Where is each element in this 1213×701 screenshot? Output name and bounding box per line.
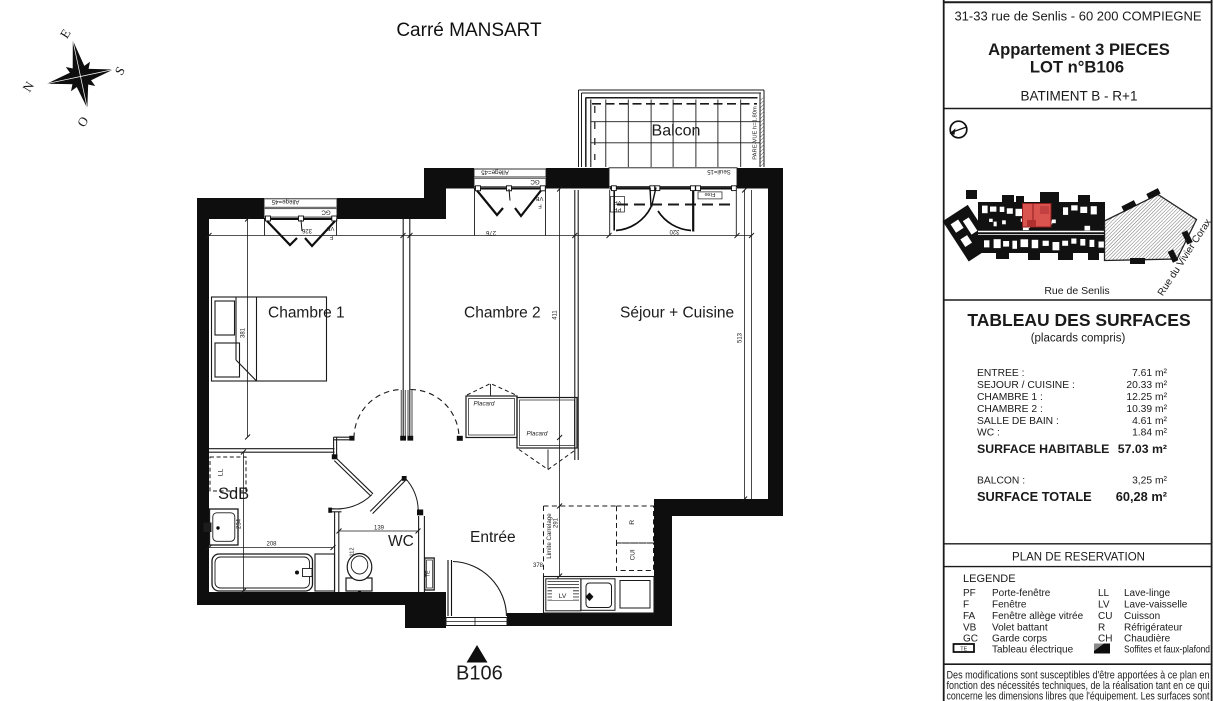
svg-text:Fixe: Fixe <box>705 191 716 197</box>
svg-text:LOT n°B106: LOT n°B106 <box>1030 58 1124 77</box>
svg-text:LL: LL <box>1098 588 1110 599</box>
svg-text:Appartement 3 PIECES: Appartement 3 PIECES <box>988 40 1170 59</box>
svg-text:Fenêtre: Fenêtre <box>992 600 1027 611</box>
svg-text:Chaudière: Chaudière <box>1124 634 1171 645</box>
svg-text:CHAMBRE 2 :: CHAMBRE 2 : <box>977 404 1043 415</box>
svg-text:Porte-fenêtre: Porte-fenêtre <box>992 588 1051 599</box>
svg-text:PF: PF <box>963 588 976 599</box>
svg-text:LV: LV <box>1098 600 1110 611</box>
svg-text:BALCON :: BALCON : <box>977 476 1025 487</box>
svg-text:Chambre 1: Chambre 1 <box>268 305 345 322</box>
svg-text:VB: VB <box>963 623 977 634</box>
svg-text:VB: VB <box>327 225 335 231</box>
svg-text:TABLEAU DES SURFACES: TABLEAU DES SURFACES <box>967 310 1190 330</box>
svg-text:SURFACE HABITABLE: SURFACE HABITABLE <box>977 442 1109 456</box>
svg-text:B106: B106 <box>456 663 503 685</box>
svg-text:Volet battant: Volet battant <box>992 623 1048 634</box>
svg-text:276: 276 <box>485 229 496 235</box>
svg-text:381: 381 <box>241 327 247 338</box>
svg-text:CUI: CUI <box>629 549 636 560</box>
svg-text:1.84 m²: 1.84 m² <box>1132 428 1167 439</box>
svg-text:GC: GC <box>321 208 331 215</box>
svg-text:10.39 m²: 10.39 m² <box>1126 404 1167 415</box>
svg-text:WC: WC <box>388 533 414 550</box>
svg-text:320: 320 <box>669 228 680 234</box>
svg-text:GC: GC <box>963 634 978 645</box>
svg-text:LL: LL <box>218 469 225 477</box>
svg-text:LV: LV <box>559 593 567 600</box>
svg-text:20.33 m²: 20.33 m² <box>1126 380 1167 391</box>
svg-text:TE: TE <box>426 570 432 577</box>
svg-text:ENTREE :: ENTREE : <box>977 368 1025 379</box>
svg-text:513: 513 <box>738 332 744 343</box>
svg-text:31-33 rue de Senlis - 60 200 C: 31-33 rue de Senlis - 60 200 COMPIEGNE <box>954 9 1201 24</box>
svg-text:Rue de Senlis: Rue de Senlis <box>1044 285 1109 297</box>
svg-text:Placard: Placard <box>527 431 549 438</box>
svg-text:PLAN DE RESERVATION: PLAN DE RESERVATION <box>1012 552 1145 564</box>
svg-text:F: F <box>963 600 969 611</box>
svg-text:WC :: WC : <box>977 428 1000 439</box>
svg-text:Soffites et faux-plafond: Soffites et faux-plafond <box>1124 645 1210 656</box>
svg-text:4.61 m²: 4.61 m² <box>1132 416 1167 427</box>
svg-text:SEJOUR / CUISINE :: SEJOUR / CUISINE : <box>977 380 1075 391</box>
svg-text:139: 139 <box>374 526 385 532</box>
svg-text:Seuil=15: Seuil=15 <box>707 168 731 174</box>
svg-text:112: 112 <box>350 548 356 557</box>
svg-text:3,25 m²: 3,25 m² <box>1132 476 1167 487</box>
svg-text:Entrée: Entrée <box>470 529 516 546</box>
svg-text:Réfrigérateur: Réfrigérateur <box>1124 623 1183 634</box>
svg-text:378: 378 <box>533 563 544 569</box>
svg-text:Lave-linge: Lave-linge <box>1124 588 1171 599</box>
svg-text:Limite Carrelage: Limite Carrelage <box>546 513 553 559</box>
svg-text:CH: CH <box>1098 634 1112 645</box>
svg-text:Allège=45: Allège=45 <box>481 168 509 175</box>
svg-text:R: R <box>1098 623 1105 634</box>
svg-text:R: R <box>629 520 636 525</box>
svg-text:411: 411 <box>553 310 559 320</box>
svg-text:GC: GC <box>530 178 540 185</box>
svg-text:PARE-VUE h=1.80m: PARE-VUE h=1.80m <box>753 106 759 160</box>
svg-text:60,28 m²: 60,28 m² <box>1116 489 1167 504</box>
svg-text:SALLE DE BAIN :: SALLE DE BAIN : <box>977 416 1059 427</box>
svg-text:F: F <box>538 203 542 209</box>
svg-text:FA: FA <box>963 611 976 622</box>
svg-text:Carré MANSART: Carré MANSART <box>396 20 542 41</box>
svg-text:SdB: SdB <box>218 485 249 503</box>
svg-text:Chambre 2: Chambre 2 <box>464 305 541 322</box>
svg-text:12.25 m²: 12.25 m² <box>1126 392 1167 403</box>
svg-text:BATIMENT B - R+1: BATIMENT B - R+1 <box>1021 89 1138 104</box>
svg-text:LEGENDE: LEGENDE <box>963 573 1016 585</box>
svg-text:VB: VB <box>536 195 544 201</box>
svg-text:7.61 m²: 7.61 m² <box>1132 368 1167 379</box>
svg-text:Balcon: Balcon <box>652 123 701 140</box>
svg-text:Garde corps: Garde corps <box>992 634 1047 645</box>
svg-text:(placards compris): (placards compris) <box>1031 333 1126 345</box>
svg-text:Allège=45: Allège=45 <box>271 198 299 205</box>
svg-text:Cuisson: Cuisson <box>1124 611 1160 622</box>
svg-text:Lave-vaisselle: Lave-vaisselle <box>1124 600 1188 611</box>
svg-text:57.03 m²: 57.03 m² <box>1118 442 1167 456</box>
svg-text:291: 291 <box>554 517 560 528</box>
svg-text:SURFACE TOTALE: SURFACE TOTALE <box>977 489 1092 504</box>
svg-text:CU: CU <box>1098 611 1112 622</box>
svg-text:Fenêtre allège vitrée: Fenêtre allège vitrée <box>992 611 1084 622</box>
svg-text:concerne les dimensions libres: concerne les dimensions libres que l'équ… <box>947 691 1211 701</box>
svg-text:F: F <box>329 234 333 240</box>
svg-text:234: 234 <box>237 518 243 529</box>
svg-text:Séjour + Cuisine: Séjour + Cuisine <box>620 305 734 322</box>
svg-text:CHAMBRE 1 :: CHAMBRE 1 : <box>977 392 1043 403</box>
svg-text:326: 326 <box>301 227 312 233</box>
svg-text:TE: TE <box>960 647 967 653</box>
svg-text:208: 208 <box>266 542 277 548</box>
svg-text:Tableau électrique: Tableau électrique <box>992 645 1074 656</box>
svg-text:Placard: Placard <box>474 401 496 408</box>
